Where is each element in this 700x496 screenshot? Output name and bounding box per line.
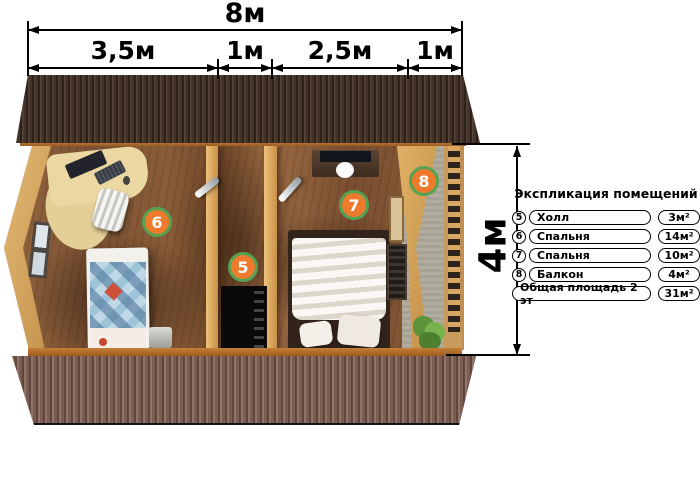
- arrow-left-icon: [28, 64, 39, 72]
- legend-room-name: Спальня: [529, 248, 651, 263]
- room-marker-7: 7: [339, 190, 369, 220]
- blanket: [90, 328, 146, 348]
- dim-segment-3-label: 2,5м: [272, 38, 408, 64]
- legend-row-bedroom-7: 7 Спальня 10м²: [512, 248, 700, 263]
- staircase-opening: [221, 286, 267, 350]
- legend-room-name: Холл: [529, 210, 651, 225]
- room-marker-6: 6: [142, 207, 172, 237]
- legend-row-total: Общая площадь 2 эт 31м²: [512, 286, 700, 301]
- balcony-railing: [444, 146, 464, 350]
- room-marker-5-number: 5: [237, 258, 248, 277]
- legend-number-badge: 5: [512, 211, 526, 225]
- dim-line-total: [28, 29, 462, 31]
- dim-segment-2-label: 1м: [218, 38, 272, 64]
- legend: Экспликация помещений 5 Холл 3м² 6 Спаль…: [512, 186, 700, 305]
- ottoman: [149, 327, 172, 348]
- legend-number-badge: 6: [512, 230, 526, 244]
- room-marker-8: 8: [409, 166, 439, 196]
- room-marker-8-number: 8: [418, 172, 429, 191]
- dim-height-label: 4м: [475, 203, 514, 287]
- legend-number-badge: 7: [512, 249, 526, 263]
- legend-room-area: 4м²: [658, 267, 700, 282]
- extension-line: [452, 143, 530, 145]
- legend-room-area: 10м²: [658, 248, 700, 263]
- bottom-wall-plate: [28, 348, 462, 356]
- arrow-left-icon: [272, 64, 283, 72]
- arrow-left-icon: [218, 64, 229, 72]
- arrow-up-icon: [513, 146, 521, 157]
- legend-title: Экспликация помещений: [512, 186, 700, 201]
- legend-row-hall: 5 Холл 3м²: [512, 210, 700, 225]
- legend-number-badge: 8: [512, 268, 526, 282]
- mouse: [123, 176, 130, 185]
- dim-segment-1-label: 3,5м: [28, 38, 218, 64]
- room-marker-6-number: 6: [151, 213, 162, 232]
- roof-bottom: [8, 356, 480, 428]
- arrow-right-icon: [261, 64, 272, 72]
- legend-row-bedroom-6: 6 Спальня 14м²: [512, 229, 700, 244]
- legend-room-area: 14м²: [658, 229, 700, 244]
- wardrobe: [387, 244, 407, 300]
- arrow-left-icon: [28, 26, 39, 34]
- floor-plan-canvas: 5 6 7 8 8м 3,5м 1м 2,5м 1м 4м Экспликаци…: [0, 0, 700, 496]
- arrow-left-icon: [408, 64, 419, 72]
- legend-room-area: 3м²: [658, 210, 700, 225]
- arrow-right-icon: [397, 64, 408, 72]
- dim-segment-4-label: 1м: [408, 38, 462, 64]
- arrow-down-icon: [513, 344, 521, 355]
- duvet: [292, 238, 386, 320]
- legend-total-label: Общая площадь 2 эт: [512, 286, 651, 301]
- balcony-door: [389, 196, 404, 242]
- dim-total-width-label: 8м: [28, 0, 462, 28]
- legend-total-area: 31м²: [658, 286, 700, 301]
- room-marker-7-number: 7: [348, 196, 359, 215]
- pillow: [337, 314, 382, 348]
- roof-top: [8, 70, 484, 143]
- arrow-right-icon: [451, 64, 462, 72]
- pillow: [298, 320, 333, 348]
- tv-screen: [320, 151, 371, 162]
- arrow-right-icon: [207, 64, 218, 72]
- legend-room-name: Спальня: [529, 229, 651, 244]
- ceiling-light: [336, 162, 354, 178]
- toy-ball: [99, 338, 107, 346]
- room-marker-5: 5: [228, 252, 258, 282]
